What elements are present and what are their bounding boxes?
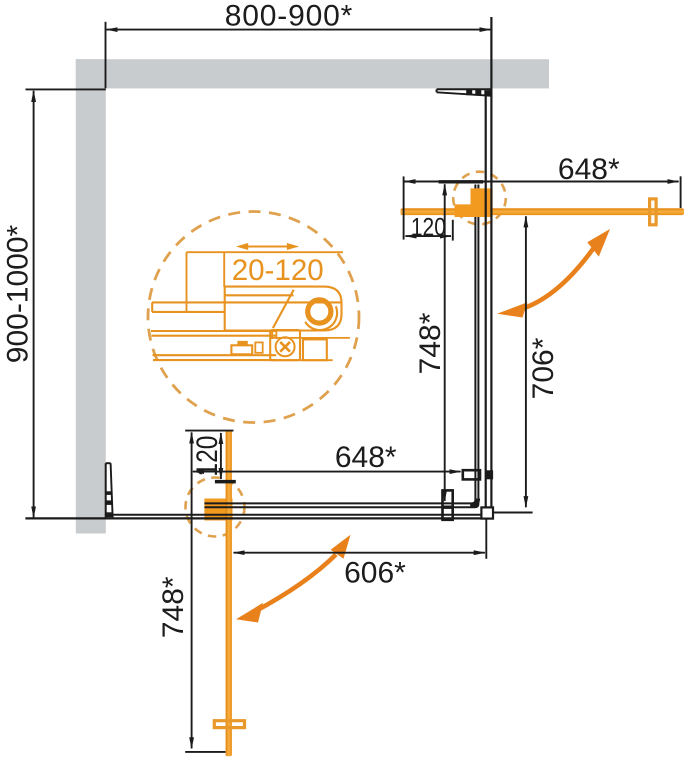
svg-text:120: 120: [191, 436, 224, 477]
svg-text:900-1000*: 900-1000*: [2, 224, 35, 363]
svg-text:748*: 748*: [157, 576, 190, 638]
svg-text:648*: 648*: [558, 153, 620, 186]
svg-text:800-900*: 800-900*: [225, 0, 353, 33]
svg-text:748*: 748*: [414, 312, 447, 374]
svg-text:606*: 606*: [344, 557, 406, 590]
svg-text:648*: 648*: [335, 441, 397, 474]
svg-text:20-120: 20-120: [232, 254, 324, 287]
svg-text:120: 120: [411, 213, 446, 241]
svg-text:706*: 706*: [527, 337, 560, 399]
